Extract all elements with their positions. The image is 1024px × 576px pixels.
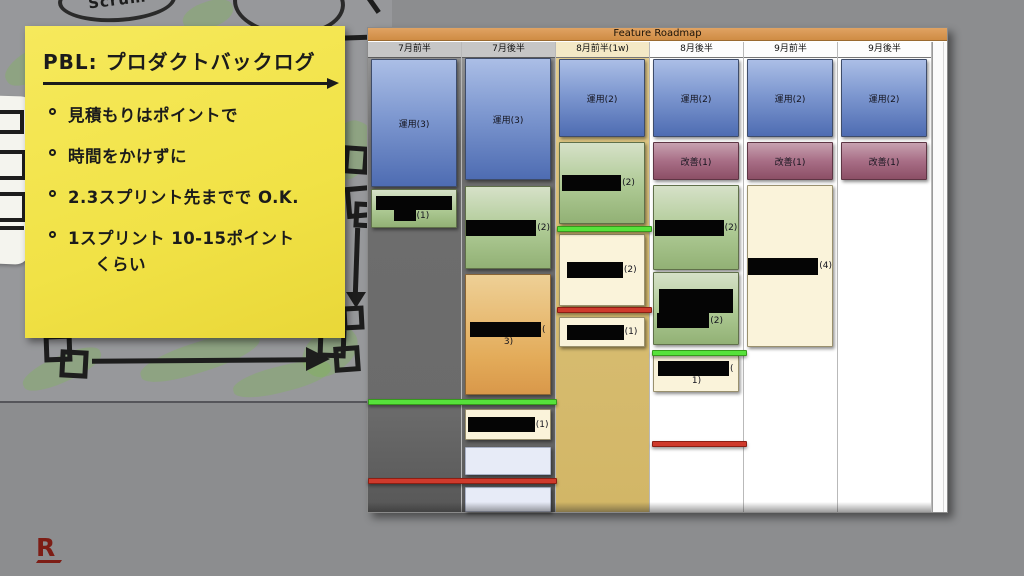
redaction-bar [394, 210, 416, 221]
milestone-red-line[interactable] [368, 478, 557, 484]
card-label: 運用(2) [587, 92, 618, 105]
sketch-box [59, 349, 88, 378]
column-header: 9月前半 [744, 42, 837, 58]
rakuten-logo: R [36, 536, 61, 563]
card-ops[interactable]: 運用(2) [559, 59, 645, 137]
column-header: 8月後半 [650, 42, 743, 58]
note-bullet-text: 見積もりはポイントで [68, 102, 238, 126]
bullet-circle-icon [49, 231, 56, 238]
card-count: (2) [725, 223, 738, 233]
card-redacted[interactable]: (2) [559, 234, 645, 306]
card-label: 改善(1) [869, 155, 900, 168]
sketch-line [0, 226, 24, 230]
window-title: Feature Roadmap [613, 28, 701, 39]
note-bullet: 見積もりはポイントで [43, 102, 331, 126]
card-label: 運用(2) [775, 92, 806, 105]
sketch-arrow-line [92, 357, 312, 364]
column-body: 運用(2) 改善(1) (4) [744, 58, 837, 512]
card-ops[interactable]: 運用(3) [465, 58, 551, 180]
card-count: ( [730, 364, 734, 374]
note-bullet: 2.3スプリント先までで O.K. [43, 184, 331, 208]
card-count: (2) [624, 265, 637, 275]
redaction-bar [562, 175, 621, 191]
card-empty[interactable] [465, 487, 551, 512]
card-redacted[interactable]: (2) [465, 186, 551, 269]
card-count: 3) [504, 337, 513, 347]
note-bullet-text: 2.3スプリント先までで O.K. [68, 184, 299, 208]
sketch-line [357, 0, 381, 14]
card-count: (1) [417, 211, 430, 221]
redaction-bar [567, 325, 624, 340]
logo-letter: R [36, 536, 61, 560]
roadmap-column-jul-second: 7月後半 運用(3) (2) ( 3) (1) [462, 42, 556, 512]
column-header: 9月後半 [838, 42, 931, 58]
note-underline [43, 82, 335, 85]
redaction-bar [748, 258, 818, 275]
column-body: 運用(2) 改善(1) [838, 58, 931, 512]
card-ops[interactable]: 運用(2) [747, 59, 833, 137]
photo-bottom-edge [0, 401, 392, 403]
bullet-circle-icon [49, 190, 56, 197]
bullet-circle-icon [49, 149, 56, 156]
card-redacted[interactable]: (2) [559, 142, 645, 224]
sketch-line [353, 228, 360, 294]
card-label: 運用(3) [493, 113, 524, 126]
card-count: (1) [625, 327, 638, 337]
card-count: ( [542, 325, 546, 335]
note-title: PBL: プロダクトバックログ [43, 46, 331, 75]
column-header: 7月前半 [368, 42, 461, 58]
milestone-green-line[interactable] [557, 226, 652, 232]
sticky-note: PBL: プロダクトバックログ 見積もりはポイントで 時間をかけずに 2.3スプ… [25, 26, 345, 338]
redaction-bar [466, 220, 536, 236]
window-titlebar[interactable]: Feature Roadmap [368, 28, 947, 41]
card-count: (2) [710, 316, 723, 326]
card-improve[interactable]: 改善(1) [841, 142, 927, 180]
milestone-red-line[interactable] [652, 441, 747, 447]
note-bullet-text: 1スプリント 10-15ポイント [68, 225, 295, 249]
card-count: (1) [536, 420, 549, 430]
redaction-bar [657, 313, 709, 328]
card-redacted[interactable]: (4) [747, 185, 833, 347]
roadmap-column-sep-second: 9月後半 運用(2) 改善(1) [838, 42, 932, 512]
sketch-box [343, 145, 369, 175]
column-body: 運用(3) (2) ( 3) (1) [462, 58, 555, 512]
card-redacted[interactable]: (2) [653, 185, 739, 270]
card-count: (4) [819, 261, 832, 271]
redaction-bar [658, 361, 729, 376]
card-redacted[interactable]: (2) [653, 272, 739, 345]
card-ops[interactable]: 運用(3) [371, 59, 457, 187]
column-body: 運用(2) (2) (2) (1) [556, 58, 649, 512]
roadmap-column-aug-first: 8月前半(1w) 運用(2) (2) (2) (1) [556, 42, 650, 512]
card-count: (2) [622, 178, 635, 188]
note-bullet-continuation: くらい [95, 251, 331, 275]
card-label: 運用(2) [869, 92, 900, 105]
card-count: (2) [537, 223, 550, 233]
sketch-box [0, 110, 24, 134]
column-header: 8月前半(1w) [556, 42, 649, 58]
roadmap-column-sep-first: 9月前半 運用(2) 改善(1) (4) [744, 42, 838, 512]
card-improve[interactable]: 改善(1) [653, 142, 739, 180]
card-redacted[interactable]: (1) [371, 189, 457, 228]
sketch-scrum-label: Scrum [87, 0, 147, 12]
card-redacted[interactable]: (1) [559, 317, 645, 347]
sketch-box [0, 150, 26, 180]
feature-roadmap-window: Feature Roadmap 7月前半 運用(3) (1) 7月後半 運用(3… [367, 27, 948, 513]
column-body: 運用(3) (1) [368, 58, 461, 512]
roadmap-columns: 7月前半 運用(3) (1) 7月後半 運用(3) (2) [368, 42, 947, 512]
milestone-green-line[interactable] [652, 350, 747, 356]
card-label: 改善(1) [775, 155, 806, 168]
scrollbar-rail [943, 42, 944, 512]
underline-arrow [327, 78, 339, 89]
note-bullet: 1スプリント 10-15ポイント [43, 225, 331, 249]
scrollbar[interactable] [932, 42, 947, 512]
note-bullet: 時間をかけずに [43, 143, 331, 167]
card-improve[interactable]: 改善(1) [747, 142, 833, 180]
redaction-bar [468, 417, 535, 432]
redaction-bar [659, 289, 733, 313]
sketch-scrum-ellipse: Scrum [57, 0, 177, 25]
milestone-green-line[interactable] [368, 399, 557, 405]
card-redacted[interactable]: ( 3) [465, 274, 551, 395]
logo-underline [36, 560, 62, 563]
card-empty[interactable] [465, 447, 551, 475]
card-label: 運用(2) [681, 92, 712, 105]
sketch-box [333, 345, 361, 373]
card-label: 運用(3) [399, 117, 430, 130]
card-ops[interactable]: 運用(2) [841, 59, 927, 137]
note-bullet-text: 時間をかけずに [68, 143, 187, 167]
redaction-bar [470, 322, 541, 337]
redaction-bar [567, 262, 622, 278]
redaction-bar [655, 220, 724, 236]
bullet-circle-icon [49, 108, 56, 115]
roadmap-column-jul-first: 7月前半 運用(3) (1) [368, 42, 462, 512]
column-header: 7月後半 [462, 42, 555, 58]
card-ops[interactable]: 運用(2) [653, 59, 739, 137]
card-redacted[interactable]: (1) [465, 409, 551, 440]
sketch-box [0, 192, 26, 222]
milestone-red-line[interactable] [557, 307, 652, 313]
redaction-bar [376, 196, 452, 210]
card-redacted[interactable]: ( 1) [653, 355, 739, 392]
card-label: 改善(1) [681, 155, 712, 168]
card-count: 1) [692, 376, 701, 386]
